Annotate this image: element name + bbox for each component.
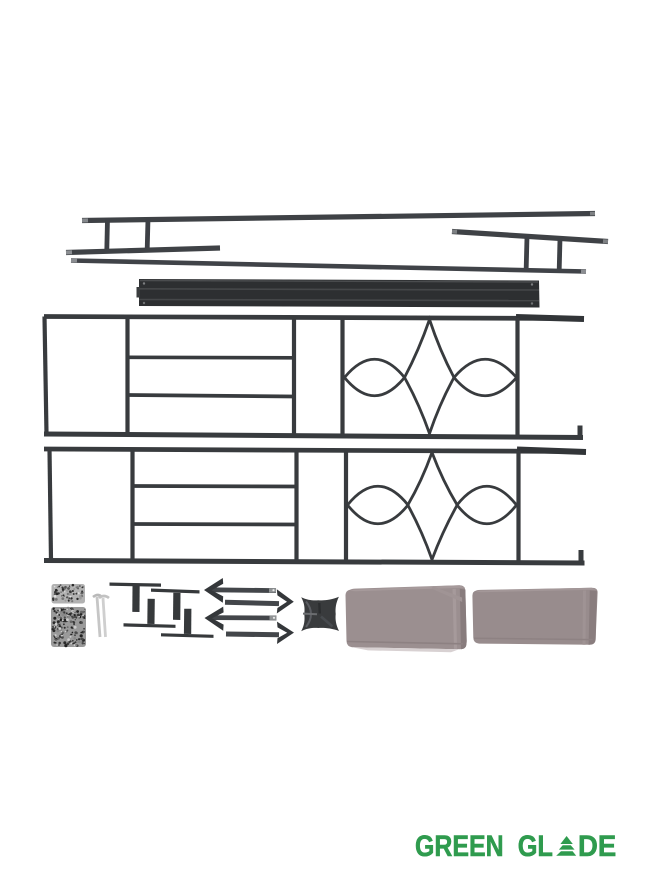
svg-text:GREEN: GREEN [415, 829, 504, 863]
svg-text:GL: GL [518, 829, 553, 862]
svg-text:DE: DE [578, 830, 616, 863]
